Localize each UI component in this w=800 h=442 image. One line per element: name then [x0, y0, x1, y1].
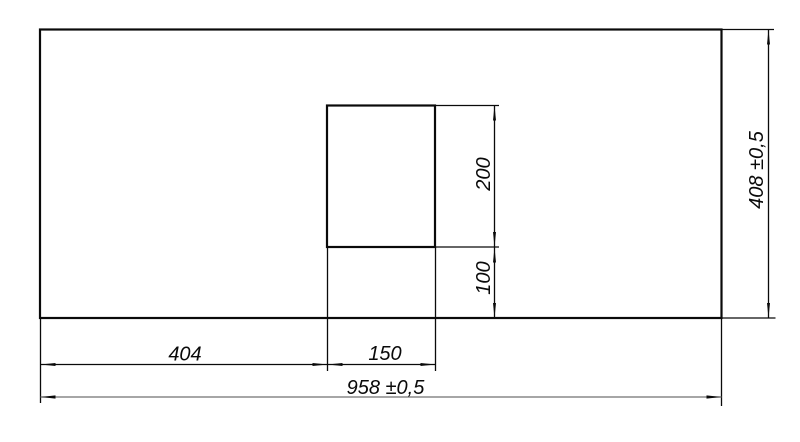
svg-text:404: 404: [168, 344, 201, 366]
svg-text:958 ±0,5: 958 ±0,5: [347, 377, 426, 399]
svg-text:100: 100: [473, 261, 495, 294]
svg-text:408 ±0,5: 408 ±0,5: [746, 130, 768, 209]
svg-text:200: 200: [473, 157, 495, 191]
svg-text:150: 150: [368, 343, 401, 365]
